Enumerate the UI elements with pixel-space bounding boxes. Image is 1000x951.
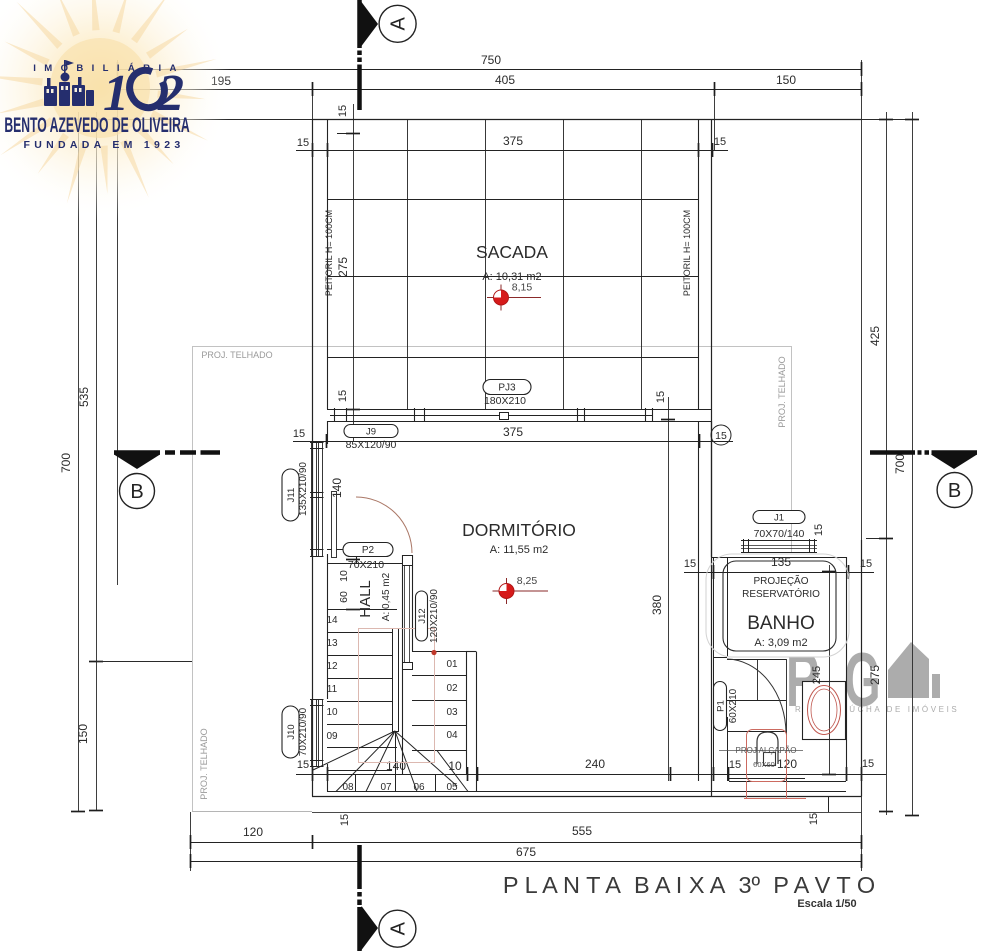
svg-text:PROJ. TELHADO: PROJ. TELHADO bbox=[777, 356, 787, 427]
svg-text:P1: P1 bbox=[715, 700, 726, 712]
svg-text:BENTO AZEVEDO DE OLIVEIRA: BENTO AZEVEDO DE OLIVEIRA bbox=[4, 112, 189, 136]
svg-text:120X210/90: 120X210/90 bbox=[429, 589, 440, 643]
svg-text:15: 15 bbox=[715, 430, 727, 442]
svg-text:750: 750 bbox=[481, 53, 501, 67]
svg-text:15: 15 bbox=[714, 136, 726, 148]
svg-text:60X210: 60X210 bbox=[728, 688, 739, 723]
svg-text:15: 15 bbox=[655, 391, 667, 403]
svg-text:P L A N T A B A I X A 3º P: P L A N T A B A I X A 3º P A V T O bbox=[503, 872, 875, 898]
svg-text:15: 15 bbox=[684, 558, 696, 570]
svg-text:P2: P2 bbox=[362, 545, 375, 556]
svg-text:150: 150 bbox=[776, 73, 796, 87]
svg-text:J1: J1 bbox=[774, 512, 784, 523]
svg-text:700: 700 bbox=[893, 454, 907, 474]
svg-text:375: 375 bbox=[503, 425, 523, 439]
svg-text:13: 13 bbox=[326, 638, 338, 649]
svg-text:240: 240 bbox=[585, 757, 605, 771]
svg-text:BANHO: BANHO bbox=[747, 613, 815, 634]
svg-text:675: 675 bbox=[516, 845, 536, 859]
svg-text:15: 15 bbox=[808, 813, 820, 825]
svg-text:07: 07 bbox=[380, 782, 392, 793]
svg-text:A: 0,45 m2: A: 0,45 m2 bbox=[381, 572, 392, 621]
svg-text:60: 60 bbox=[338, 591, 350, 603]
svg-text:J11: J11 bbox=[286, 488, 297, 503]
svg-text:J12: J12 bbox=[417, 608, 428, 623]
svg-text:85X120/90: 85X120/90 bbox=[346, 439, 397, 451]
svg-text:15: 15 bbox=[297, 137, 309, 149]
svg-text:70X210: 70X210 bbox=[348, 559, 384, 571]
svg-text:12: 12 bbox=[326, 661, 338, 672]
svg-text:PROJEÇÃO: PROJEÇÃO bbox=[753, 574, 808, 587]
svg-text:11: 11 bbox=[327, 684, 338, 695]
svg-text:180X210: 180X210 bbox=[484, 395, 526, 407]
svg-text:8,15: 8,15 bbox=[512, 282, 533, 294]
svg-text:15: 15 bbox=[337, 390, 349, 402]
svg-text:09: 09 bbox=[326, 731, 338, 742]
svg-text:135X210/90: 135X210/90 bbox=[298, 462, 309, 516]
svg-text:06: 06 bbox=[413, 782, 425, 793]
svg-text:15: 15 bbox=[813, 524, 825, 536]
svg-text:70X70/140: 70X70/140 bbox=[754, 528, 805, 540]
svg-text:08: 08 bbox=[342, 782, 354, 793]
svg-text:04: 04 bbox=[446, 730, 458, 741]
svg-text:PROJ. TELHADO: PROJ. TELHADO bbox=[199, 728, 209, 799]
svg-text:A: A bbox=[388, 16, 410, 30]
svg-text:J10: J10 bbox=[286, 724, 297, 739]
svg-text:PEITORIL H= 100CM: PEITORIL H= 100CM bbox=[324, 210, 334, 296]
svg-text:FUNDADA EM 1923: FUNDADA EM 1923 bbox=[24, 139, 185, 151]
svg-text:8,25: 8,25 bbox=[517, 575, 538, 587]
svg-text:PEITORIL H= 100CM: PEITORIL H= 100CM bbox=[682, 210, 692, 296]
svg-text:01: 01 bbox=[446, 659, 458, 670]
svg-text:405: 405 bbox=[495, 73, 515, 87]
svg-text:15: 15 bbox=[337, 105, 349, 117]
svg-text:120: 120 bbox=[243, 825, 263, 839]
svg-text:15: 15 bbox=[293, 428, 305, 440]
svg-text:535: 535 bbox=[77, 387, 91, 407]
svg-text:15: 15 bbox=[297, 759, 309, 771]
svg-text:A: 3,09 m2: A: 3,09 m2 bbox=[754, 637, 807, 649]
svg-text:275: 275 bbox=[336, 257, 350, 277]
svg-text:14: 14 bbox=[326, 615, 338, 626]
svg-text:425: 425 bbox=[868, 326, 882, 346]
svg-text:120: 120 bbox=[777, 757, 797, 771]
svg-text:03: 03 bbox=[446, 707, 458, 718]
svg-text:10: 10 bbox=[326, 707, 338, 718]
svg-text:B: B bbox=[130, 481, 143, 503]
svg-text:60X60: 60X60 bbox=[753, 760, 775, 769]
svg-text:HALL: HALL bbox=[357, 580, 374, 618]
svg-text:700: 700 bbox=[59, 453, 73, 473]
svg-text:375: 375 bbox=[503, 134, 523, 148]
svg-text:PJ3: PJ3 bbox=[498, 383, 516, 394]
svg-text:380: 380 bbox=[650, 595, 664, 615]
svg-text:15: 15 bbox=[862, 758, 874, 770]
svg-text:J9: J9 bbox=[366, 426, 376, 437]
svg-text:150: 150 bbox=[76, 724, 90, 744]
svg-text:B: B bbox=[948, 480, 961, 502]
svg-text:A: A bbox=[387, 921, 409, 935]
svg-text:02: 02 bbox=[446, 683, 458, 694]
svg-text:15: 15 bbox=[729, 759, 741, 771]
svg-text:SACADA: SACADA bbox=[476, 242, 548, 262]
svg-text:DORMITÓRIO: DORMITÓRIO bbox=[462, 519, 576, 540]
svg-text:10: 10 bbox=[338, 570, 350, 582]
svg-text:PROJ. TELHADO: PROJ. TELHADO bbox=[201, 350, 272, 360]
svg-text:05: 05 bbox=[446, 782, 458, 793]
svg-text:10: 10 bbox=[448, 759, 462, 773]
svg-text:275: 275 bbox=[868, 665, 882, 685]
svg-text:Escala 1/50: Escala 1/50 bbox=[797, 898, 856, 910]
svg-text:140: 140 bbox=[330, 478, 344, 498]
svg-text:15: 15 bbox=[339, 814, 351, 826]
svg-text:A: 11,55 m2: A: 11,55 m2 bbox=[490, 544, 549, 556]
svg-text:555: 555 bbox=[572, 824, 592, 838]
svg-text:70X210/90: 70X210/90 bbox=[298, 707, 309, 756]
svg-text:RESERVATÓRIO: RESERVATÓRIO bbox=[742, 587, 820, 600]
